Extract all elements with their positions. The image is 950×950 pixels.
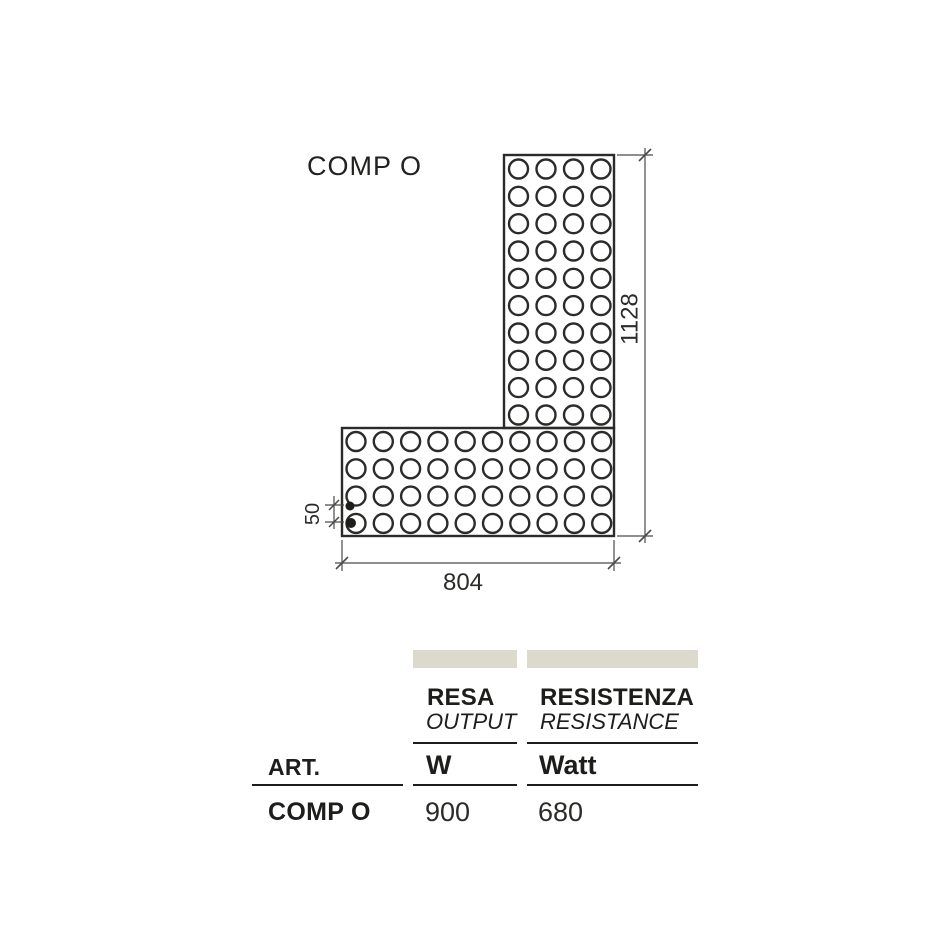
- row-resistance-value: 680: [538, 798, 583, 826]
- radiator-hole: [537, 242, 556, 261]
- radiator-hole: [565, 514, 584, 533]
- radiator-hole: [592, 242, 611, 261]
- dim-spacing-label: 50: [302, 503, 324, 525]
- color-swatch-output: [413, 650, 517, 668]
- dimension-width-lines: [335, 540, 621, 571]
- radiator-hole: [483, 487, 502, 506]
- spec-sheet-page: COMP O: [0, 0, 950, 950]
- radiator-hole: [592, 269, 611, 288]
- radiator-hole: [401, 459, 420, 478]
- radiator-hole: [564, 351, 583, 370]
- radiator-hole: [510, 514, 529, 533]
- divider: [413, 742, 517, 744]
- radiator-hole: [401, 432, 420, 451]
- radiator-hole: [428, 487, 447, 506]
- color-swatch-resistance: [527, 650, 698, 668]
- radiator-hole: [537, 351, 556, 370]
- radiator-hole: [564, 214, 583, 233]
- radiator-hole: [592, 214, 611, 233]
- radiator-hole: [456, 432, 475, 451]
- radiator-hole: [347, 459, 366, 478]
- radiator-hole: [374, 432, 393, 451]
- radiator-hole: [537, 160, 556, 179]
- radiator-hole: [538, 432, 557, 451]
- radiator-hole: [565, 459, 584, 478]
- radiator-hole: [592, 378, 611, 397]
- radiator-hole: [401, 487, 420, 506]
- radiator-hole: [509, 187, 528, 206]
- radiator-hole: [428, 514, 447, 533]
- radiator-hole: [509, 160, 528, 179]
- radiator-hole: [564, 269, 583, 288]
- col-output-header-en: OUTPUT: [426, 710, 516, 734]
- col-output-header-it: RESA: [427, 685, 494, 711]
- radiator-hole: [592, 514, 611, 533]
- col-resistance-unit: Watt: [539, 751, 596, 780]
- radiator-vertical-panel: [504, 155, 614, 428]
- col-resistance-header-en: RESISTANCE: [540, 710, 679, 734]
- radiator-hole: [509, 351, 528, 370]
- radiator-hole: [592, 187, 611, 206]
- radiator-hole: [509, 214, 528, 233]
- radiator-hole: [564, 187, 583, 206]
- radiator-hole: [510, 432, 529, 451]
- radiator-hole: [592, 406, 611, 425]
- radiator-hole: [565, 432, 584, 451]
- radiator-hole: [509, 242, 528, 261]
- radiator-hole: [592, 160, 611, 179]
- row-output-value: 900: [425, 798, 470, 826]
- dim-width-label: 804: [443, 569, 483, 596]
- col-resistance-header-it: RESISTENZA: [540, 685, 694, 711]
- radiator-hole: [537, 214, 556, 233]
- radiator-hole: [509, 324, 528, 343]
- radiator-hole: [374, 514, 393, 533]
- radiator-hole: [428, 459, 447, 478]
- radiator-hole: [510, 459, 529, 478]
- radiator-hole: [456, 459, 475, 478]
- radiator-hole: [592, 324, 611, 343]
- col-art-header: ART.: [268, 754, 320, 780]
- radiator-hole: [564, 242, 583, 261]
- radiator-hole: [592, 459, 611, 478]
- radiator-hole: [592, 432, 611, 451]
- radiator-hole: [592, 487, 611, 506]
- radiator-hole: [483, 514, 502, 533]
- radiator-hole: [564, 296, 583, 315]
- radiator-hole: [564, 324, 583, 343]
- radiator-hole: [565, 487, 584, 506]
- radiator-hole: [456, 514, 475, 533]
- radiator-hole: [483, 459, 502, 478]
- radiator-hole: [538, 514, 557, 533]
- radiator-hole: [483, 432, 502, 451]
- connection-dot-bottom: [346, 518, 356, 528]
- radiator-hole: [456, 487, 475, 506]
- col-output-unit: W: [426, 751, 451, 780]
- divider: [413, 784, 517, 786]
- radiator-hole: [537, 378, 556, 397]
- radiator-hole: [564, 406, 583, 425]
- radiator-hole: [537, 296, 556, 315]
- radiator-diagram: 804 1128 50: [0, 0, 950, 950]
- divider: [527, 742, 698, 744]
- radiator-hole: [537, 406, 556, 425]
- radiator-hole: [592, 351, 611, 370]
- radiator-hole: [401, 514, 420, 533]
- radiator-hole: [509, 296, 528, 315]
- hole-grid-horizontal: [347, 432, 612, 533]
- radiator-hole: [537, 269, 556, 288]
- radiator-hole: [538, 459, 557, 478]
- radiator-hole: [509, 378, 528, 397]
- radiator-hole: [537, 187, 556, 206]
- divider: [527, 784, 698, 786]
- radiator-hole: [374, 487, 393, 506]
- radiator-horizontal-panel: [342, 428, 614, 536]
- radiator-hole: [509, 406, 528, 425]
- radiator-hole: [510, 487, 529, 506]
- radiator-hole: [428, 432, 447, 451]
- radiator-hole: [538, 487, 557, 506]
- radiator-hole: [374, 459, 393, 478]
- row-art-value: COMP O: [268, 798, 371, 826]
- dim-height-label: 1128: [617, 293, 644, 345]
- connection-dot-top: [346, 502, 355, 511]
- hole-grid-vertical: [509, 160, 611, 425]
- radiator-hole: [509, 269, 528, 288]
- radiator-hole: [564, 160, 583, 179]
- radiator-hole: [347, 432, 366, 451]
- radiator-hole: [592, 296, 611, 315]
- divider: [252, 784, 403, 786]
- radiator-hole: [537, 324, 556, 343]
- radiator-hole: [564, 378, 583, 397]
